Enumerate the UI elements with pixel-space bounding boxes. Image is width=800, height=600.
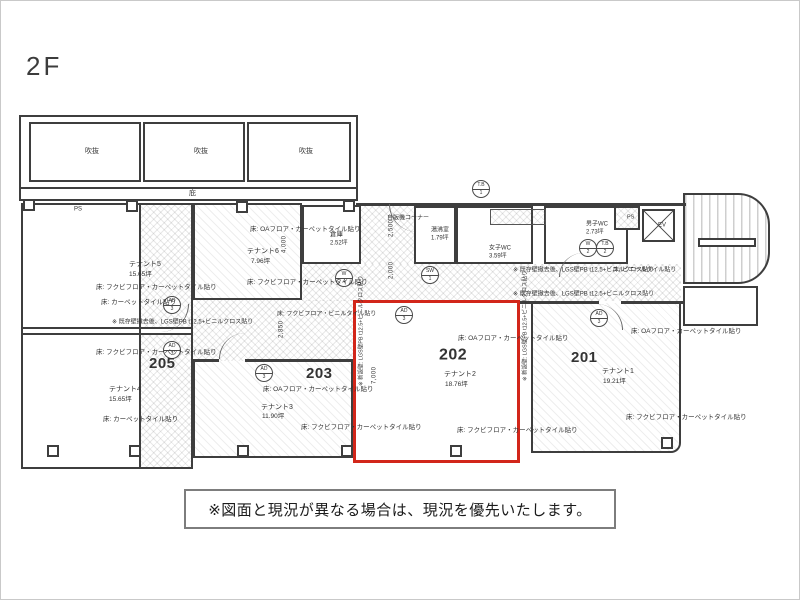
pillar bbox=[129, 445, 141, 457]
pillar bbox=[343, 200, 355, 212]
symbol-tb2: T.B2 bbox=[596, 239, 614, 257]
pillar bbox=[23, 199, 35, 211]
pillar bbox=[126, 200, 138, 212]
wall-t3-top-b bbox=[245, 359, 355, 362]
pillar bbox=[236, 201, 248, 213]
disclaimer-text: ※図面と現況が異なる場合は、現況を優先いたします。 bbox=[208, 499, 592, 520]
pillar bbox=[450, 445, 462, 457]
wall-left-corridor bbox=[139, 203, 141, 469]
floor-title: 2F bbox=[26, 51, 62, 82]
pillar bbox=[341, 445, 353, 457]
disclaimer-box: ※図面と現況が異なる場合は、現況を優先いたします。 bbox=[184, 489, 616, 529]
counter-fixture bbox=[490, 209, 546, 225]
left-block-outline bbox=[21, 203, 193, 469]
symbol-ad3-5: AD3 bbox=[590, 309, 608, 327]
wall-t1-top-a bbox=[519, 301, 599, 304]
floor-plan-page: 2F 吹抜 吹抜 吹抜 庇 bbox=[0, 0, 800, 600]
pillar bbox=[661, 437, 673, 449]
symbol-ad3-4: AD3 bbox=[395, 306, 413, 324]
symbol-sw1: SW1 bbox=[421, 266, 439, 284]
stair-landing bbox=[683, 286, 758, 326]
wall-t3-top-a bbox=[193, 359, 219, 362]
pillar bbox=[237, 445, 249, 457]
pillar bbox=[47, 445, 59, 457]
corridor-hatch-mid bbox=[193, 300, 353, 361]
room-tenant2-highlight bbox=[353, 300, 520, 463]
wall-t1-top-b bbox=[621, 301, 683, 304]
symbol-ad3-3: AD3 bbox=[255, 364, 273, 382]
stair-handrail bbox=[698, 238, 756, 247]
symbol-tb1: T.B1 bbox=[472, 180, 490, 198]
symbol-w2: W2 bbox=[579, 239, 597, 257]
